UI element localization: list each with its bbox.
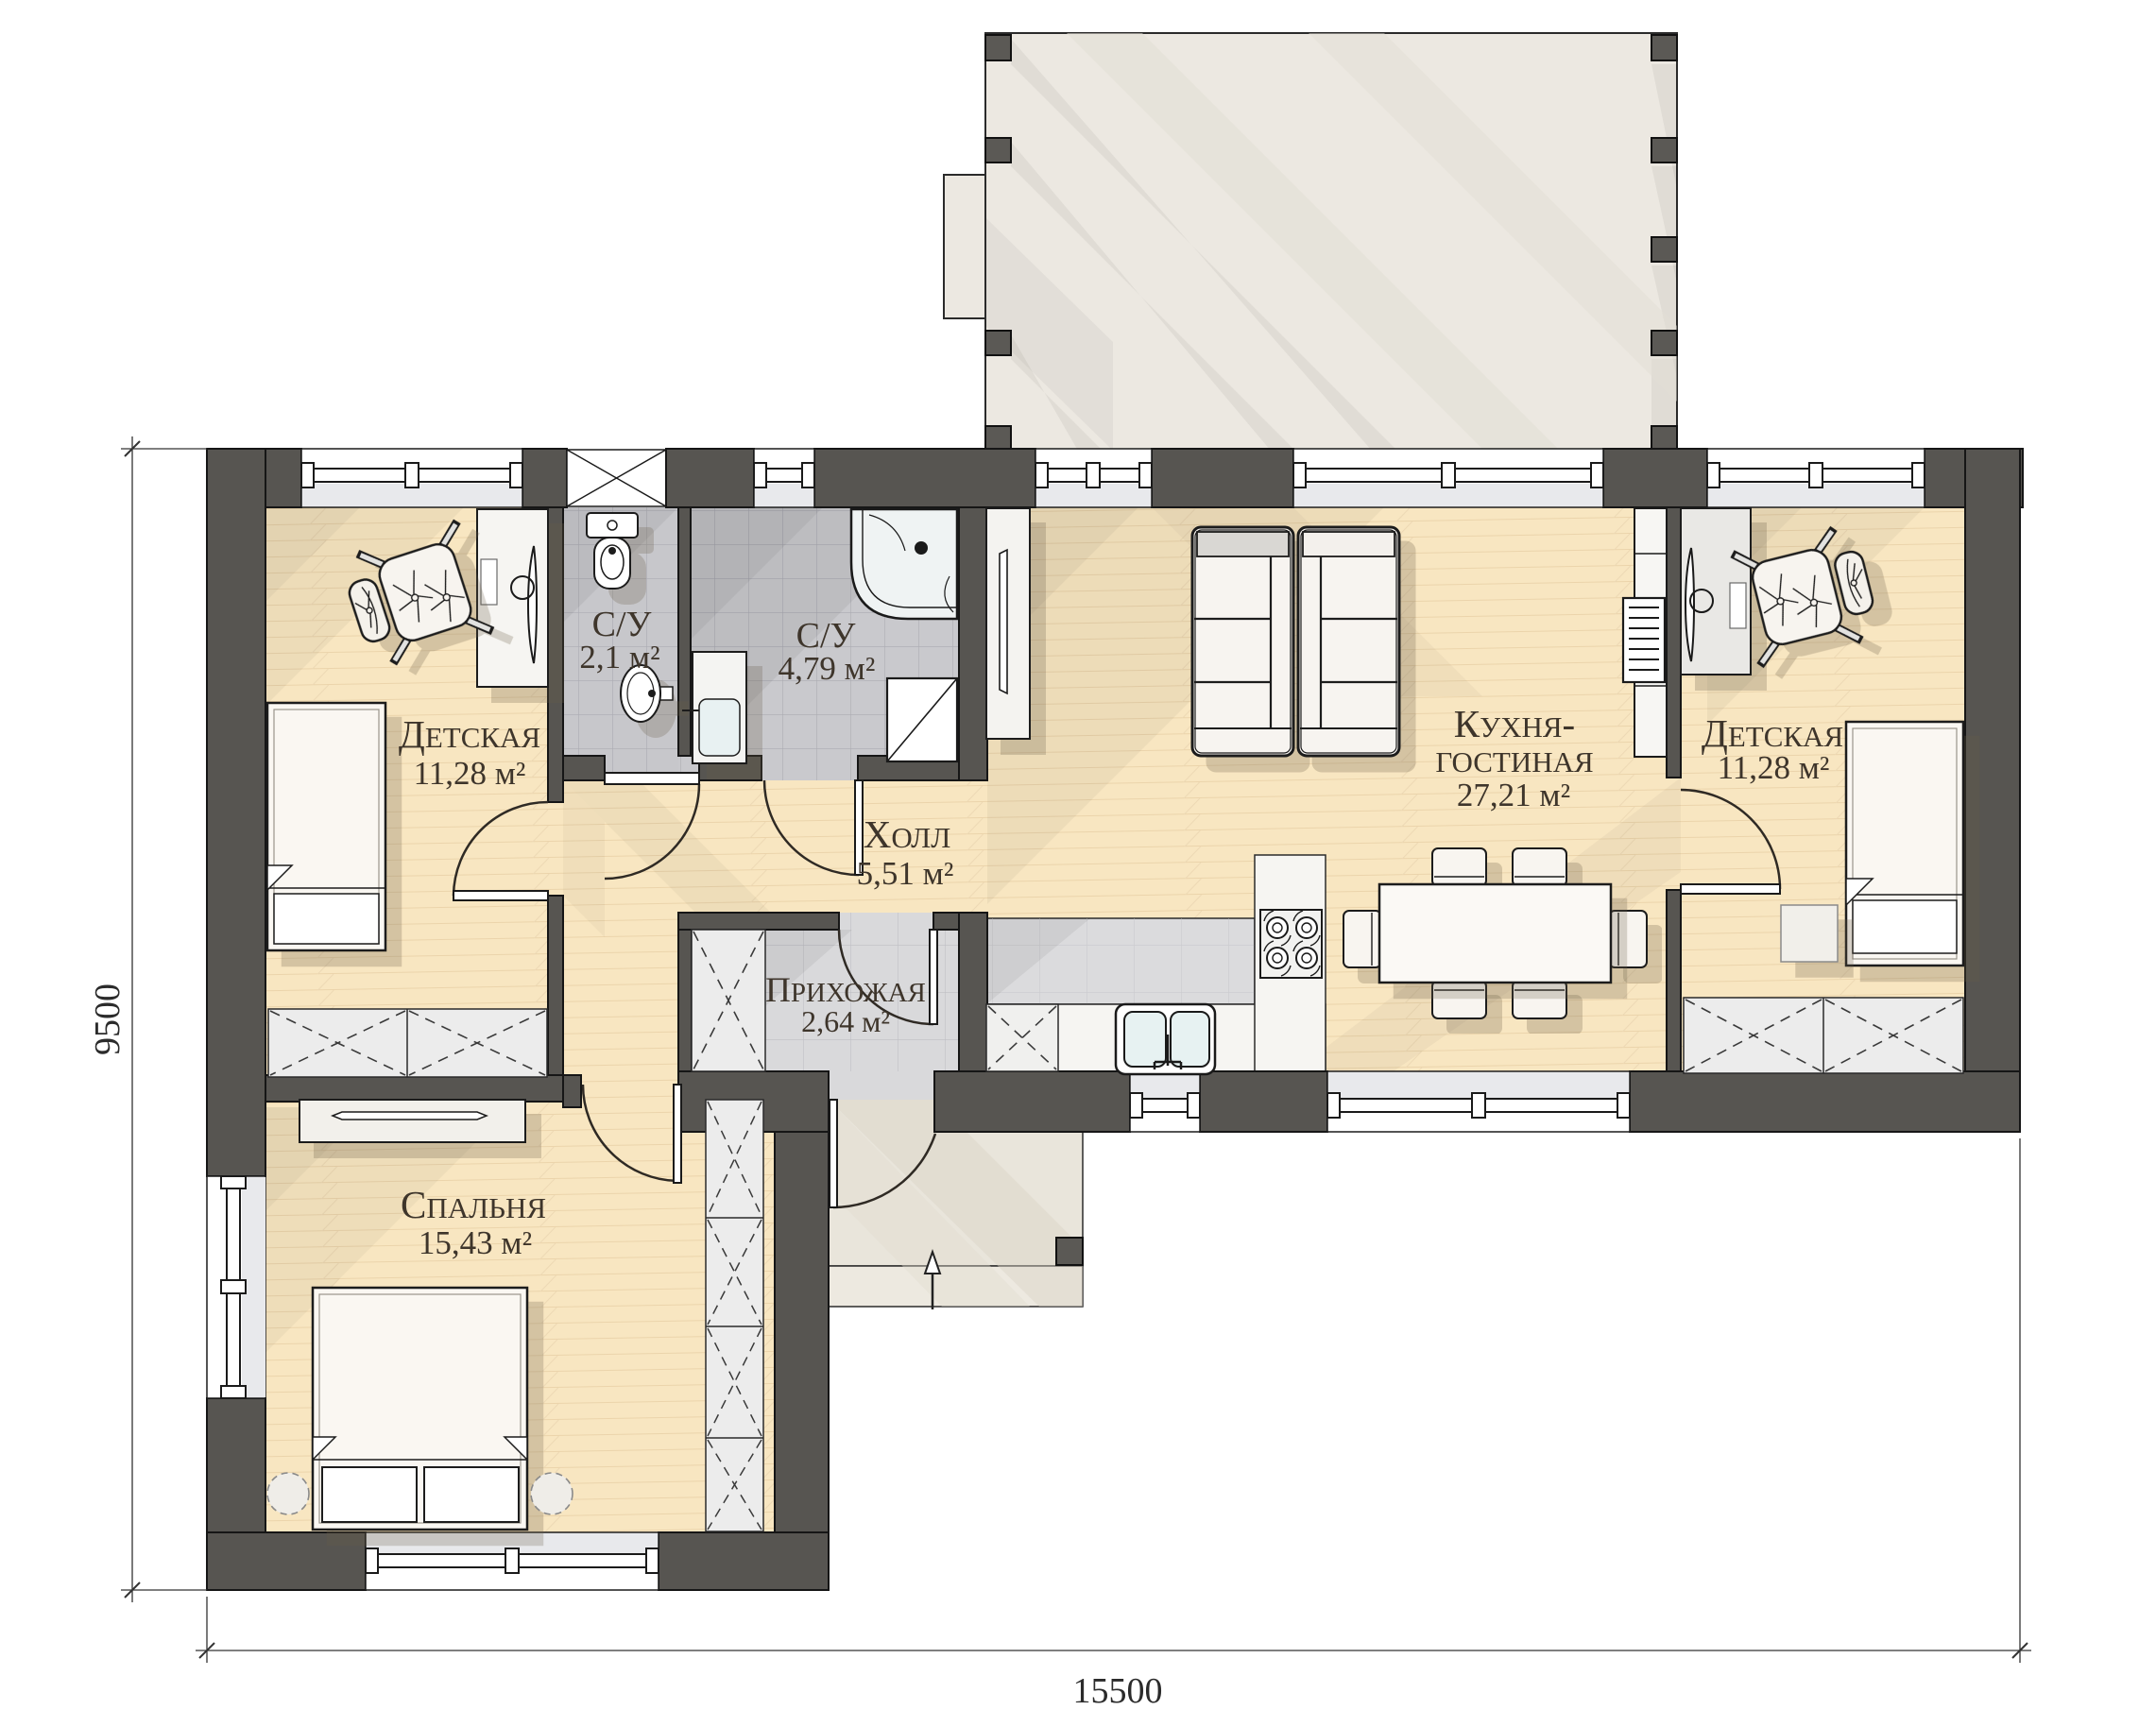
svg-text:15,43 м²: 15,43 м² [419, 1224, 532, 1261]
svg-text:2,64 м²: 2,64 м² [801, 1004, 890, 1038]
svg-text:4,79 м²: 4,79 м² [779, 650, 876, 687]
svg-text:15500: 15500 [1073, 1671, 1163, 1710]
svg-text:27,21 м²: 27,21 м² [1457, 777, 1570, 813]
svg-text:11,28 м²: 11,28 м² [414, 755, 526, 792]
svg-text:2,1 м²: 2,1 м² [579, 639, 659, 675]
svg-text:9500: 9500 [88, 983, 128, 1055]
svg-text:11,28 м²: 11,28 м² [1718, 749, 1830, 786]
svg-text:5,51 м²: 5,51 м² [857, 855, 954, 892]
svg-text:ГОСТИНАЯ: ГОСТИНАЯ [1435, 745, 1593, 778]
